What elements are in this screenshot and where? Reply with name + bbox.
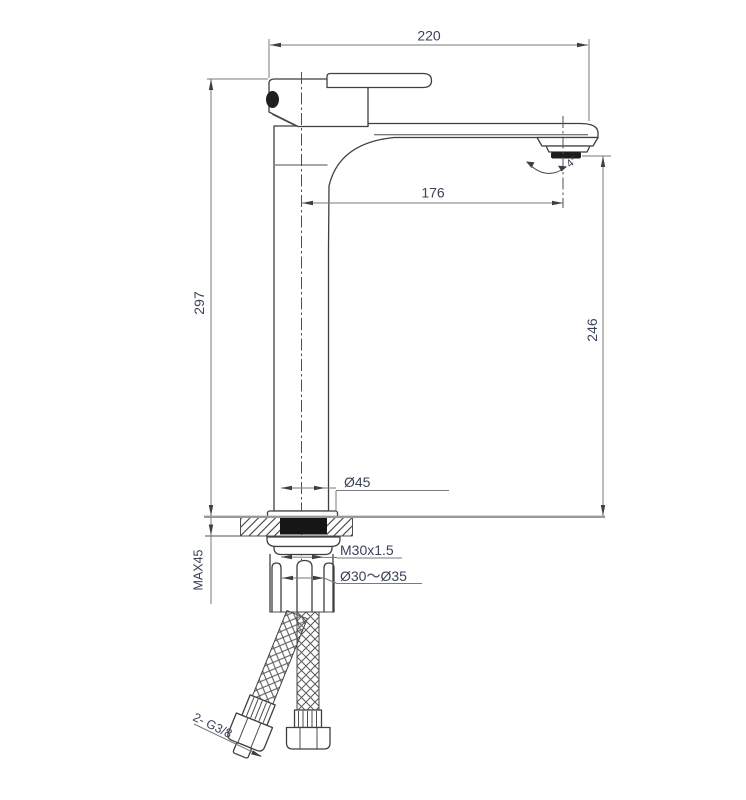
gasket	[280, 518, 327, 535]
faucet-body	[266, 74, 598, 512]
dim-label-m30: M30x1.5	[340, 542, 394, 558]
counter-hatch-left	[241, 518, 281, 536]
dim-label-max45: MAX45	[192, 549, 206, 590]
counter-hatch-right	[327, 518, 353, 536]
supply-hoses	[222, 607, 330, 763]
dim-label-dia45: Ø45	[344, 474, 371, 490]
temperature-dot	[266, 91, 279, 108]
dimension-spout-height: 246	[582, 156, 611, 516]
hose-ferrule	[295, 710, 322, 728]
dimension-overall-height: 297	[191, 79, 268, 516]
faucet-technical-drawing: 220 297 246 176 Ø45 M30x1.5	[0, 0, 746, 800]
dim-label-246: 246	[584, 318, 600, 342]
handle-lever	[327, 74, 432, 88]
locknut	[267, 537, 340, 555]
aerator-ring	[551, 152, 581, 159]
hose-nut	[287, 728, 331, 750]
hose-braid	[297, 612, 319, 711]
label-g38: 2- G3/8	[191, 710, 235, 741]
hose-tail-left	[272, 563, 281, 612]
drawing-page: 220 297 246 176 Ø45 M30x1.5	[0, 0, 746, 800]
body-spout-outline	[274, 124, 598, 512]
shank	[270, 555, 334, 613]
dim-label-176: 176	[421, 185, 445, 201]
dimension-mount-hole: Ø30～Ø35	[282, 568, 422, 584]
dim-label-297: 297	[191, 291, 207, 315]
dimension-max-thickness: MAX45	[192, 517, 214, 604]
aerator	[537, 138, 598, 159]
dimension-spout-reach: 176	[302, 185, 563, 206]
dim-label-hole: Ø30～Ø35	[340, 568, 407, 584]
mounting-area	[204, 511, 605, 612]
hose-tail-center	[297, 561, 312, 613]
dim-label-220: 220	[417, 28, 441, 44]
